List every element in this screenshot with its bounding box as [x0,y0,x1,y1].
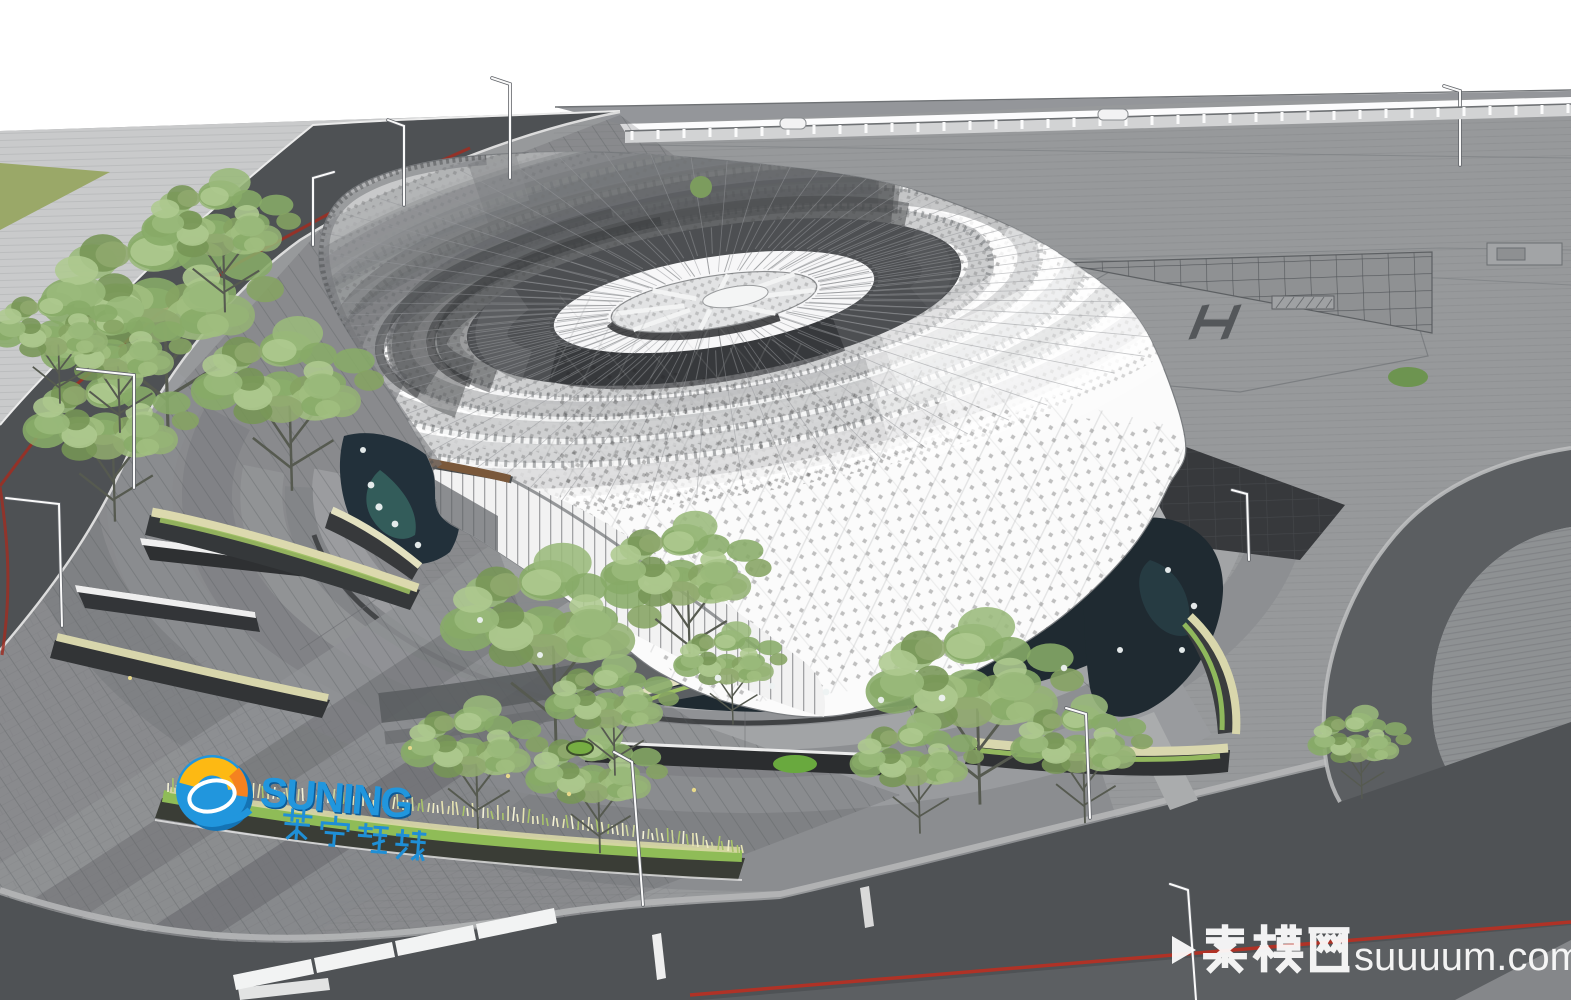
svg-text:suuuum.com: suuuum.com [1354,935,1571,979]
